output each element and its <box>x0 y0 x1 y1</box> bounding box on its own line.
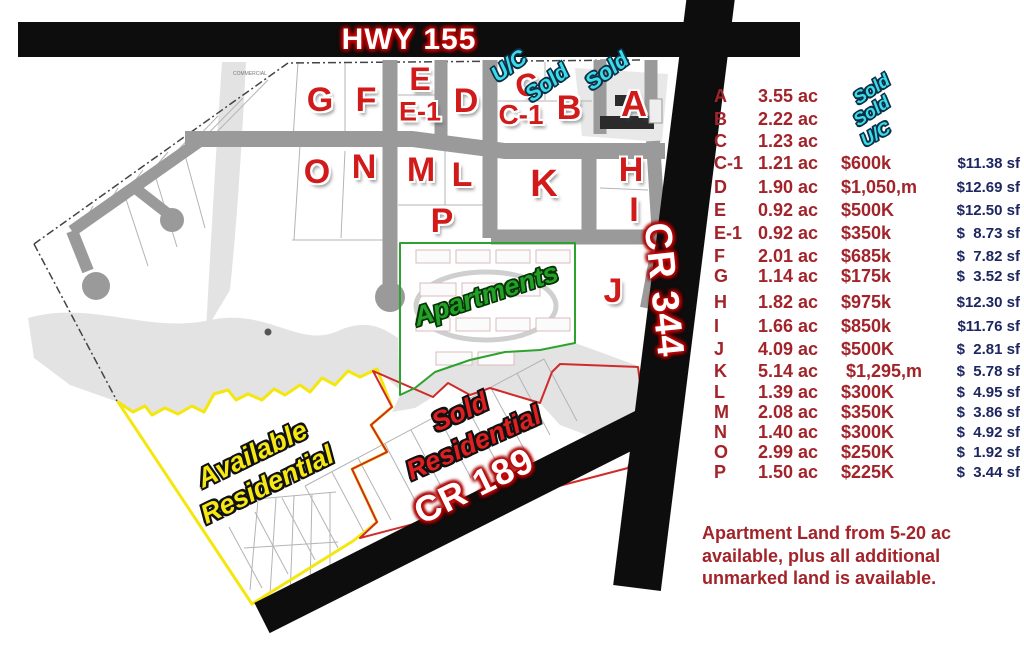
lot-price: $600k <box>841 153 891 174</box>
lot-price: $500K <box>841 339 894 360</box>
lot-marker-m: M <box>407 153 435 187</box>
lot-acres: 1.14 ac <box>758 266 818 287</box>
lot-price: $500K <box>841 200 894 221</box>
lot-acres: 4.09 ac <box>758 339 818 360</box>
price-row-j: J4.09 ac$500K$ 2.81 sf <box>700 339 1022 363</box>
lot-marker-l: L <box>452 158 473 192</box>
lot-id: D <box>714 177 727 198</box>
lot-price: $350k <box>841 223 891 244</box>
cul-de-sacs <box>82 208 405 312</box>
price-per-sf: $11.76 sf <box>957 318 1020 335</box>
lot-id: E-1 <box>714 223 742 244</box>
lot-id: H <box>714 292 727 313</box>
lot-price: $250K <box>841 442 894 463</box>
price-per-sf: $ 3.86 sf <box>957 404 1020 421</box>
lot-marker-f: F <box>356 83 377 117</box>
lot-acres: 2.99 ac <box>758 442 818 463</box>
lot-marker-j: J <box>604 274 623 308</box>
lot-acres: 1.21 ac <box>758 153 818 174</box>
price-per-sf: $12.30 sf <box>957 294 1020 311</box>
lot-acres: 5.14 ac <box>758 361 818 382</box>
lot-id: C <box>714 131 727 152</box>
lot-price: $975k <box>841 292 891 313</box>
price-per-sf: $ 4.92 sf <box>957 424 1020 441</box>
lot-id: K <box>714 361 727 382</box>
lot-id: I <box>714 316 719 337</box>
price-per-sf: $ 4.95 sf <box>957 384 1020 401</box>
footer-note-line3: unmarked land is available. <box>702 567 951 590</box>
lot-lines <box>80 62 648 596</box>
lot-id: B <box>714 109 727 130</box>
price-row-i: I1.66 ac$850k$11.76 sf <box>700 316 1022 340</box>
price-row-d: D1.90 ac$1,050,m$12.69 sf <box>700 177 1022 201</box>
lot-price: $850k <box>841 316 891 337</box>
plat-map-flyer: HWY 155 CR 344 CR 189 Apartments Availab… <box>0 0 1024 646</box>
lot-acres: 3.55 ac <box>758 86 818 107</box>
lot-id: P <box>714 462 726 483</box>
price-row-e-1: E-10.92 ac$350k$ 8.73 sf <box>700 223 1022 247</box>
price-row-p: P1.50 ac$225K$ 3.44 sf <box>700 462 1022 486</box>
price-per-sf: $11.38 sf <box>957 155 1020 172</box>
available-residential-label: Available Residential <box>180 408 339 532</box>
lot-marker-a: A <box>621 86 647 122</box>
lot-acres: 1.23 ac <box>758 131 818 152</box>
price-row-e: E0.92 ac$500K$12.50 sf <box>700 200 1022 224</box>
price-per-sf: $12.69 sf <box>957 179 1020 196</box>
lot-price: $175k <box>841 266 891 287</box>
footer-note: Apartment Land from 5-20 ac available, p… <box>702 522 951 590</box>
lot-marker-i: I <box>629 193 638 227</box>
lot-marker-h: H <box>619 153 644 187</box>
lot-price: $300K <box>841 382 894 403</box>
lot-id: L <box>714 382 725 403</box>
lot-marker-g: G <box>307 83 333 117</box>
lot-acres: 1.90 ac <box>758 177 818 198</box>
price-per-sf: $ 1.92 sf <box>957 444 1020 461</box>
commercial-note: COMMERCIAL <box>233 71 267 77</box>
lot-acres: 1.39 ac <box>758 382 818 403</box>
lot-price: $300K <box>841 422 894 443</box>
lot-marker-k: K <box>530 165 557 203</box>
lot-acres: 2.08 ac <box>758 402 818 423</box>
lot-id: G <box>714 266 728 287</box>
price-row-c-1: C-11.21 ac$600k$11.38 sf <box>700 153 1022 177</box>
lot-id: J <box>714 339 724 360</box>
price-row-g: G1.14 ac$175k$ 3.52 sf <box>700 266 1022 290</box>
lot-acres: 2.22 ac <box>758 109 818 130</box>
lot-id: E <box>714 200 726 221</box>
price-per-sf: $ 3.44 sf <box>957 464 1020 481</box>
lot-marker-b: B <box>557 91 582 125</box>
lot-marker-e: E <box>409 63 430 95</box>
lot-acres: 2.01 ac <box>758 246 818 267</box>
lot-acres: 1.40 ac <box>758 422 818 443</box>
lot-id: F <box>714 246 725 267</box>
lot-id: A <box>714 86 727 107</box>
lot-price: $685k <box>841 246 891 267</box>
lot-marker-p: P <box>431 204 454 238</box>
price-per-sf: $ 3.52 sf <box>957 268 1020 285</box>
footer-note-line2: available, plus all additional <box>702 545 951 568</box>
hwy155-bar: HWY 155 <box>18 22 800 57</box>
cr344-label: CR 344 <box>635 221 692 360</box>
lot-acres: 1.66 ac <box>758 316 818 337</box>
price-per-sf: $ 2.81 sf <box>957 341 1020 358</box>
price-per-sf: $ 5.78 sf <box>957 363 1020 380</box>
lot-price: $1,295,m <box>841 361 922 382</box>
lot-id: N <box>714 422 727 443</box>
lot-acres: 1.50 ac <box>758 462 818 483</box>
lot-price: $1,050,m <box>841 177 917 198</box>
price-row-c: C1.23 acU/C <box>700 131 1022 155</box>
price-per-sf: $ 8.73 sf <box>957 225 1020 242</box>
lot-marker-n: N <box>352 150 377 184</box>
footer-note-line1: Apartment Land from 5-20 ac <box>702 522 951 545</box>
lot-acres: 0.92 ac <box>758 223 818 244</box>
lot-price: $225K <box>841 462 894 483</box>
lot-id: M <box>714 402 729 423</box>
lot-acres: 0.92 ac <box>758 200 818 221</box>
lot-marker-o: O <box>304 155 330 189</box>
lot-price: $350K <box>841 402 894 423</box>
lot-marker-d: D <box>454 84 479 118</box>
apartments-area-label: Apartments <box>410 257 562 333</box>
price-row-h: H1.82 ac$975k$12.30 sf <box>700 292 1022 316</box>
lot-id: C-1 <box>714 153 743 174</box>
property-boundary-dashed <box>34 60 640 604</box>
lot-id: O <box>714 442 728 463</box>
lot-acres: 1.82 ac <box>758 292 818 313</box>
lot-marker-e-1: E-1 <box>399 99 441 126</box>
price-per-sf: $12.50 sf <box>957 202 1020 219</box>
price-per-sf: $ 7.82 sf <box>957 248 1020 265</box>
hwy155-label: HWY 155 <box>342 23 477 57</box>
